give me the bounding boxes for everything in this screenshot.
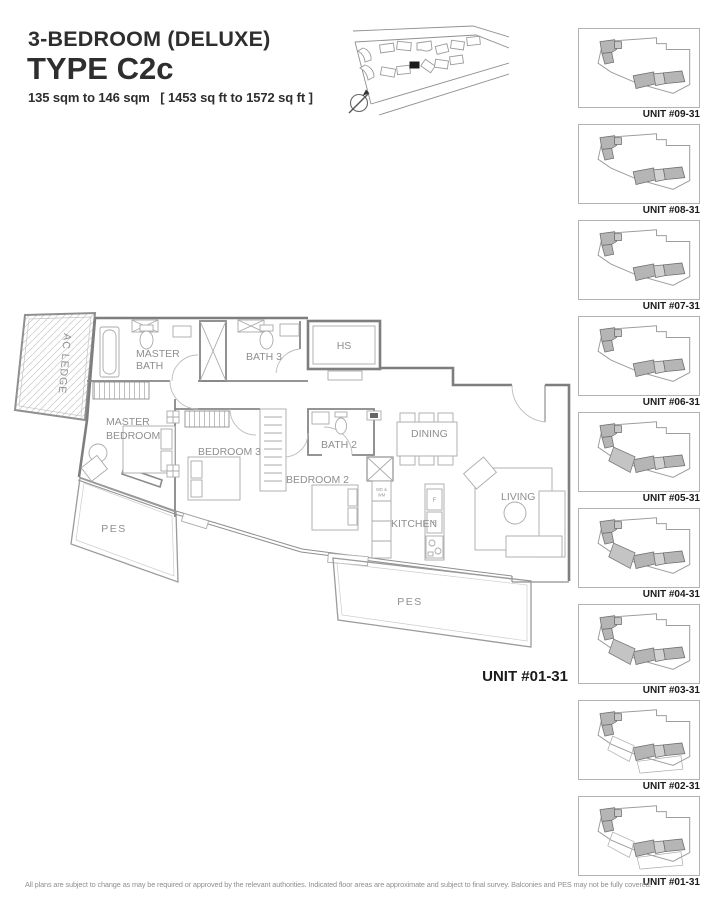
room-label-dining: DINING (411, 428, 448, 440)
floor-plan: AC LEDGE MASTER BATH BATH 3 HS MASTER BE… (12, 305, 572, 670)
unit-thumbnail-label: UNIT #02-31 (578, 781, 700, 793)
unit-thumbnail-label: UNIT #06-31 (578, 397, 700, 409)
unit-thumbnail-label: UNIT #08-31 (578, 205, 700, 217)
plan-type-title: TYPE C2c (27, 51, 173, 87)
appliance-label-1: WD & (376, 487, 387, 492)
room-label-bath2: BATH 2 (321, 439, 357, 451)
room-label-master-bedroom-2: BEDROOM (106, 430, 160, 442)
site-key-plan (343, 18, 511, 120)
pes-bottom (333, 558, 531, 647)
fridge-label-1: F (433, 498, 437, 504)
room-label-master-bedroom-1: MASTER (106, 416, 150, 428)
room-label-pes-left: PES (101, 523, 127, 535)
disclaimer-text: All plans are subject to change as may b… (25, 880, 695, 889)
room-label-kitchen: KITCHEN (391, 518, 437, 530)
unit-thumbnail-label: UNIT #09-31 (578, 109, 700, 121)
room-label-master-bath-1: MASTER (136, 348, 180, 360)
room-label-living: LIVING (501, 491, 535, 503)
thumbnail-row: UNIT #03-31 (578, 604, 700, 697)
unit-thumbnail-label: UNIT #03-31 (578, 685, 700, 697)
room-label-bedroom3: BEDROOM 3 (198, 446, 261, 458)
unit-thumbnail-label: UNIT #04-31 (578, 589, 700, 601)
room-label-pes-bottom: PES (397, 596, 423, 608)
unit-stack-column: UNIT #09-31 UNIT #08-31 UNIT #07-31 UNIT… (578, 28, 700, 892)
unit-thumbnail-plan (578, 220, 700, 300)
room-label-master-bath-2: BATH (136, 360, 163, 372)
unit-thumbnail-plan (578, 316, 700, 396)
room-label-bedroom2: BEDROOM 2 (286, 474, 349, 486)
thumbnail-row: UNIT #01-31 (578, 796, 700, 889)
site-buildings (358, 36, 480, 80)
thumbnail-row: UNIT #06-31 (578, 316, 700, 409)
room-label-hs: HS (337, 340, 352, 352)
unit-thumbnail-label: UNIT #07-31 (578, 301, 700, 313)
unit-thumbnail-plan (578, 508, 700, 588)
unit-thumbnail-plan (578, 28, 700, 108)
north-arrow-icon (349, 90, 369, 114)
ac-ledge (15, 313, 95, 420)
highlighted-block (410, 62, 419, 68)
thumbnail-row: UNIT #05-31 (578, 412, 700, 505)
fridge-label-2: F (433, 521, 437, 527)
unit-thumbnail-plan (578, 796, 700, 876)
unit-number-label: UNIT #01-31 (482, 668, 568, 685)
thumbnail-row: UNIT #04-31 (578, 508, 700, 601)
brochure-page: 3-BEDROOM (DELUXE) TYPE C2c 135 sqm to 1… (0, 0, 709, 908)
unit-thumbnail-plan (578, 124, 700, 204)
thumbnail-row: UNIT #08-31 (578, 124, 700, 217)
unit-thumbnail-plan (578, 700, 700, 780)
unit-thumbnail-plan (578, 604, 700, 684)
thumbnail-row: UNIT #02-31 (578, 700, 700, 793)
unit-thumbnail-label: UNIT #05-31 (578, 493, 700, 505)
floor-area-text: 135 sqm to 146 sqm [ 1453 sq ft to 1572 … (28, 90, 313, 105)
appliance-label-2: WM (378, 493, 386, 498)
room-label-bath3: BATH 3 (246, 351, 282, 363)
thumbnail-row: UNIT #09-31 (578, 28, 700, 121)
plan-type-subtitle: 3-BEDROOM (DELUXE) (28, 27, 271, 52)
thumbnail-row: UNIT #07-31 (578, 220, 700, 313)
unit-thumbnail-plan (578, 412, 700, 492)
